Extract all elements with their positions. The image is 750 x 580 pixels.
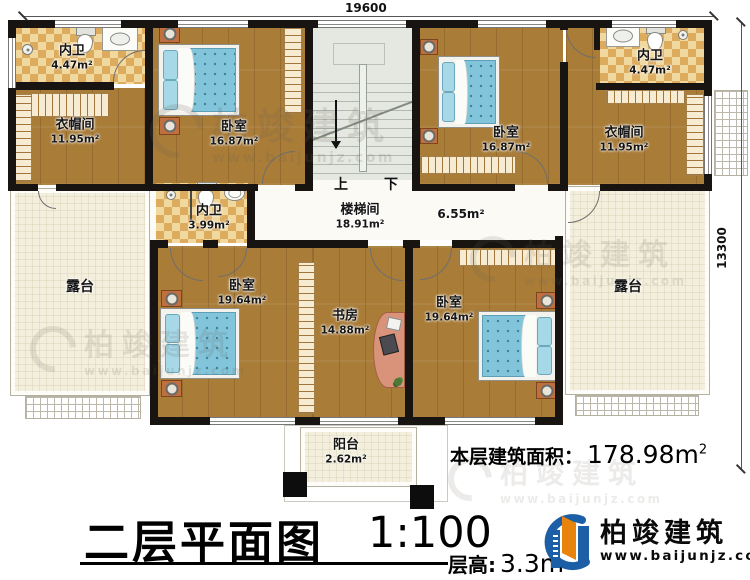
watermark-url: www.baijunjz.com — [500, 492, 663, 506]
balcony-door — [320, 417, 398, 425]
shower-icon — [166, 190, 176, 200]
wall — [56, 184, 150, 191]
wall — [596, 83, 708, 90]
room-label-stair-hall: 楼梯间 18.91m² — [336, 204, 385, 231]
room-label-bath-tr: 内卫 4.47m² — [629, 50, 670, 77]
closet-rack — [420, 156, 516, 174]
stair-up-label: 上 — [334, 174, 348, 194]
pillar-right — [410, 485, 434, 509]
window — [8, 38, 16, 88]
wall — [420, 184, 515, 191]
room-label-wic-right: 衣帽间 11.95m² — [600, 127, 649, 154]
wall — [203, 240, 218, 248]
nightstand — [161, 380, 182, 397]
nightstand — [536, 292, 557, 309]
floor-plan-page: 柏竣建筑 www.baijunjz.com 柏竣建筑 www.baijunjz.… — [0, 0, 750, 580]
window — [478, 20, 546, 28]
terrace-left-railing — [25, 396, 141, 419]
window — [612, 20, 676, 28]
sink-icon — [606, 25, 640, 47]
room-label-balcony: 阳台 2.62m² — [325, 439, 366, 466]
room-label-terrace-right: 露台 — [614, 279, 642, 295]
closet-rack — [30, 93, 110, 117]
window — [55, 20, 121, 28]
laptop-icon — [386, 317, 402, 332]
window — [704, 96, 712, 174]
room-label-bedroom-bl: 卧室 19.64m² — [218, 280, 267, 307]
wall — [555, 236, 563, 425]
wall — [594, 25, 600, 50]
brand-name: 柏竣建筑 — [600, 520, 750, 548]
dimension-right: 13300 — [715, 227, 729, 269]
brand-url: www.baijunjz.com — [600, 548, 750, 564]
nightstand — [420, 128, 438, 144]
bed — [160, 308, 240, 379]
stair-landing-edge — [333, 43, 385, 65]
wall — [412, 184, 420, 191]
hall-area-label: 6.55m² — [437, 208, 484, 222]
closet-rack — [298, 262, 315, 414]
total-area: 本层建筑面积： 178.98m2 — [450, 440, 707, 469]
closet-rack — [284, 28, 302, 114]
wall — [560, 20, 568, 30]
room-label-study: 书房 14.88m² — [321, 310, 370, 337]
wall — [600, 184, 712, 191]
wall — [295, 184, 313, 191]
window — [210, 417, 295, 425]
bed — [478, 311, 557, 381]
wall — [548, 184, 568, 191]
closet-rack — [606, 90, 686, 104]
sink-icon — [102, 27, 138, 51]
room-label-terrace-left: 露台 — [66, 279, 94, 295]
window — [318, 20, 406, 28]
room-label-bedroom-br: 卧室 19.64m² — [425, 297, 474, 324]
wall — [247, 240, 368, 248]
closet-rack — [686, 94, 704, 176]
dimension-line-top — [22, 16, 714, 17]
floor-height-label: 层高: — [448, 549, 496, 578]
wall — [8, 184, 38, 191]
brand-block: 柏竣建筑 www.baijunjz.com — [536, 510, 750, 574]
dimension-top: 19600 — [345, 1, 387, 15]
wall — [412, 20, 420, 184]
title-underline — [80, 562, 448, 565]
stair-down-label: 下 — [384, 174, 398, 194]
nightstand — [420, 39, 438, 55]
toilet-icon — [646, 25, 664, 51]
window — [178, 20, 248, 28]
shower-icon — [22, 44, 33, 55]
room-label-bedroom-tr: 卧室 16.87m² — [482, 127, 531, 154]
brand-logo-icon — [536, 510, 592, 574]
bed — [158, 44, 240, 116]
dimension-line-right — [741, 22, 742, 470]
room-label-bath-tl: 内卫 4.47m² — [51, 45, 92, 72]
nightstand — [161, 290, 182, 307]
wall — [305, 20, 313, 184]
total-area-label: 本层建筑面积： — [450, 442, 583, 469]
wall — [150, 184, 258, 191]
closet-rack — [14, 94, 32, 182]
wall — [247, 184, 255, 246]
room-label-wic-left: 衣帽间 11.95m² — [51, 119, 100, 146]
wall — [150, 240, 158, 425]
room-label-bath-mid: 内卫 3.99m² — [188, 205, 229, 232]
pillar-left — [283, 472, 307, 497]
wall — [14, 82, 114, 90]
nightstand — [536, 382, 557, 399]
wall — [452, 240, 560, 248]
terrace-right-railing — [575, 395, 699, 416]
stair-direction-arrow — [335, 100, 337, 148]
wall — [403, 240, 420, 248]
wall — [405, 248, 413, 417]
closet-rack — [458, 249, 556, 266]
wall — [560, 62, 568, 186]
wall — [145, 20, 153, 188]
room-label-bedroom-tl: 卧室 16.87m² — [210, 121, 259, 148]
plant-icon — [394, 378, 402, 386]
nightstand — [159, 117, 180, 135]
bed — [438, 56, 500, 128]
side-railing-right — [714, 90, 748, 176]
shower-icon — [678, 30, 688, 40]
window — [445, 417, 535, 425]
total-area-value: 178.98m2 — [587, 440, 707, 469]
